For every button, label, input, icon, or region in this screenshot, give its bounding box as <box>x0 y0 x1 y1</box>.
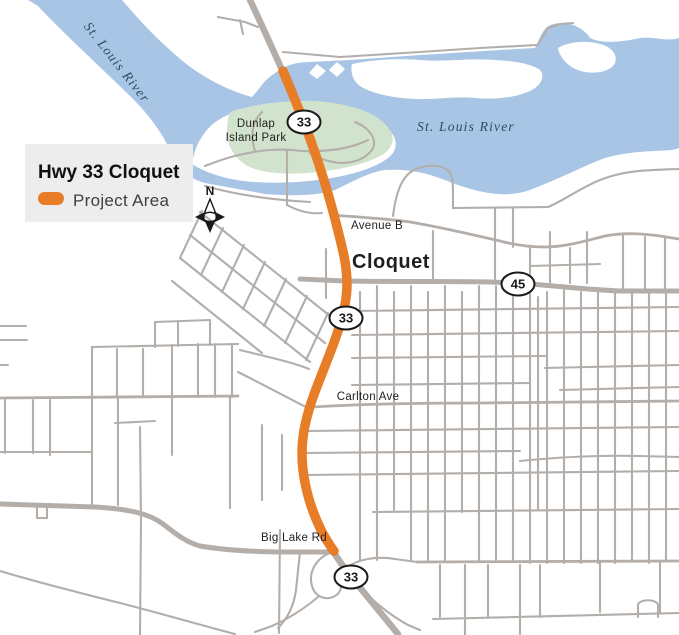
river-label-lower: St. Louis River <box>417 119 515 134</box>
bay-island-large <box>351 59 542 99</box>
big-lake-rd-label: Big Lake Rd <box>261 532 327 544</box>
map-canvas: 33 33 33 45 St. Louis River St. Louis Ri… <box>0 0 679 635</box>
hwy-33-shield-south-number: 33 <box>344 570 358 585</box>
hwy-33-shield-north-number: 33 <box>297 115 311 130</box>
hwy-33-shield-south: 33 <box>335 566 368 589</box>
big-lake-rd-road <box>0 504 334 552</box>
north-compass: N <box>195 184 225 233</box>
legend-item-label: Project Area <box>73 191 169 210</box>
park-label-line1: Dunlap <box>237 118 275 130</box>
compass-north-letter: N <box>206 184 215 198</box>
hwy-33-shield-north: 33 <box>288 111 321 134</box>
city-label: Cloquet <box>352 251 430 273</box>
hwy-45-shield: 45 <box>502 273 535 296</box>
legend-panel <box>25 144 193 222</box>
carlton-ave-label: Carlton Ave <box>337 391 400 403</box>
long-west-road <box>0 396 238 398</box>
compass-arrow-down-icon <box>204 219 216 233</box>
hwy-45-shield-number: 45 <box>511 277 525 292</box>
compass-arrow-right-icon <box>214 212 225 223</box>
park-label-line2: Island Park <box>226 132 287 144</box>
hwy-33-shield-mid-number: 33 <box>339 311 353 326</box>
hwy-33-shield-mid: 33 <box>330 307 363 330</box>
map-legend: Hwy 33 Cloquet Project Area <box>25 144 193 222</box>
project-area-swatch <box>38 192 64 205</box>
legend-title: Hwy 33 Cloquet <box>38 162 180 183</box>
big-lake-rd-east <box>417 561 679 562</box>
avenue-b-label: Avenue B <box>351 220 403 232</box>
